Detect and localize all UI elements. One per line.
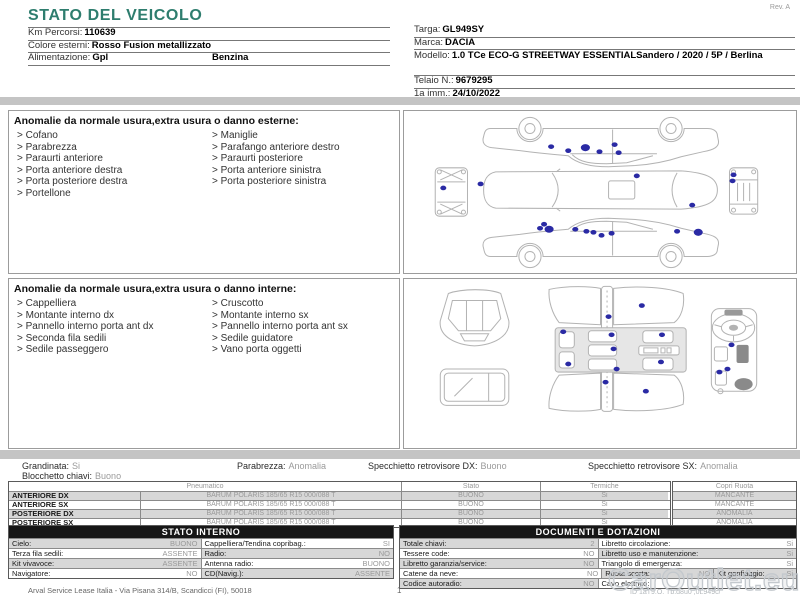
- table-row: Tessere code:NO Libretto uso e manutenzi…: [400, 548, 796, 558]
- field-telaio: Telaio N.:9679295: [414, 76, 795, 89]
- damage-marker: [616, 150, 622, 155]
- damage-marker: [674, 229, 680, 234]
- damage-marker: [572, 227, 578, 232]
- field-marca: Marca:DACIA: [414, 38, 795, 51]
- col-termiche: Termiche: [540, 482, 668, 491]
- exterior-anomalies-heading: Anomalie da normale usura,extra usura o …: [14, 115, 399, 127]
- footer-company: Arval Service Lease Italia - Via Pisana …: [28, 586, 252, 595]
- interior-damage-diagram: [404, 279, 796, 448]
- summary-grandinata: Grandinata:Si: [22, 461, 80, 471]
- damage-marker: [658, 360, 664, 365]
- table-row: Cielo:BUONO Cappelliera/Tendina copribag…: [9, 538, 393, 548]
- car-side-view-bottom: [483, 218, 719, 267]
- interior-diagram-box: [403, 278, 797, 449]
- anomaly-item: Pannello interno porta ant dx: [17, 321, 204, 333]
- section-divider-bar: [0, 450, 800, 459]
- anomaly-item: Sedile passeggero: [17, 344, 204, 356]
- section-divider-bar: [0, 97, 800, 105]
- vehicle-info-left: Km Percorsi:110639 Colore esterni:Rosso …: [28, 27, 390, 66]
- damage-marker: [548, 144, 554, 149]
- anomaly-item: Sedile guidatore: [212, 333, 399, 345]
- damage-marker: [612, 142, 618, 147]
- anomaly-item: Pannello interno porta ant sx: [212, 321, 399, 333]
- damage-marker: [596, 149, 602, 154]
- col-pneumatico: Pneumatico: [9, 482, 401, 491]
- damage-marker: [730, 173, 736, 178]
- anomaly-item: Cofano: [17, 130, 204, 142]
- exterior-anomaly-list-left: Cofano Parabrezza Paraurti anteriore Por…: [17, 130, 204, 199]
- interior-anomaly-list-right: Cruscotto Montante interno sx Pannello i…: [212, 298, 399, 356]
- damage-marker: [609, 231, 615, 236]
- damage-marker: [614, 367, 620, 372]
- damage-marker: [590, 230, 596, 235]
- hatch-view: [440, 369, 509, 405]
- damage-marker: [545, 226, 554, 233]
- copri-value: ANOMALIA: [673, 509, 796, 518]
- summary-parabrezza: Parabrezza:Anomalia: [237, 461, 326, 471]
- copri-ruota-table: Copri Ruota MANCANTE MANCANTE ANOMALIA A…: [672, 481, 797, 528]
- car-top-view: [484, 169, 718, 211]
- copri-value: MANCANTE: [673, 500, 796, 509]
- vehicle-info-right: Targa:GL949SY Marca:DACIA Modello:1.0 TC…: [414, 25, 795, 101]
- anomaly-item: Parafango anteriore destro: [212, 142, 399, 154]
- table-row: Kit vivavoce:ASSENTE Antenna radio:BUONO: [9, 558, 393, 568]
- damage-marker: [611, 347, 617, 352]
- car-side-view-top: [483, 117, 719, 166]
- tire-row-anteriore-dx: ANTERIORE DX BARUM POLARIS 185/65 R15 00…: [9, 491, 670, 500]
- dashboard-view: [711, 309, 756, 394]
- exterior-anomaly-list-right: Maniglie Parafango anteriore destro Para…: [212, 130, 399, 199]
- damage-marker: [565, 362, 571, 367]
- anomaly-item: Vano porta oggetti: [212, 344, 399, 356]
- damage-marker: [694, 229, 703, 236]
- page-title: STATO DEL VEICOLO: [28, 7, 202, 25]
- damage-marker: [603, 380, 609, 385]
- trunk-view: [440, 290, 509, 346]
- interior-anomalies-box: Anomalie da normale usura,extra usura o …: [8, 278, 400, 449]
- damage-marker: [583, 229, 589, 234]
- table-row: Terza fila sedili:ASSENTE Radio:NO: [9, 548, 393, 558]
- table-row: Totale chiavi:2 Libretto circolazione:Si: [400, 538, 796, 548]
- anomaly-item: Paraurti posteriore: [212, 153, 399, 165]
- exterior-anomalies-box: Anomalie da normale usura,extra usura o …: [8, 110, 400, 274]
- anomaly-item: Cappelliera: [17, 298, 204, 310]
- damage-marker: [609, 332, 615, 337]
- damage-marker: [724, 367, 730, 372]
- damage-marker: [659, 332, 665, 337]
- anomaly-item: Porta posteriore sinistra: [212, 176, 399, 188]
- field-modello: Modello:1.0 TCe ECO-G STREETWAY ESSENTIA…: [414, 50, 795, 76]
- anomaly-item: Seconda fila sedili: [17, 333, 204, 345]
- documenti-title: DOCUMENTI E DOTAZIONI: [400, 526, 796, 538]
- summary-specchietto-sx: Specchietto retrovisore SX:Anomalia: [588, 461, 738, 471]
- tire-table: Pneumatico Stato Termiche ANTERIORE DX B…: [8, 481, 671, 528]
- table-row: Navigatore:NO CD(Navig.):ASSENTE: [9, 568, 393, 578]
- damage-marker: [560, 329, 566, 334]
- damage-marker: [728, 343, 734, 348]
- damage-marker: [606, 314, 612, 319]
- field-alimentazione: Alimentazione:Gpl Benzina: [28, 53, 390, 66]
- condition-summary: Grandinata:Si Parabrezza:Anomalia Specch…: [0, 459, 800, 481]
- damage-marker: [440, 186, 446, 191]
- tire-row-anteriore-sx: ANTERIORE SX BARUM POLARIS 185/65 R15 00…: [9, 500, 670, 509]
- damage-marker: [716, 370, 722, 375]
- cabin-view: [549, 286, 686, 411]
- exterior-diagram-box: [403, 110, 797, 274]
- interior-anomaly-list-left: Cappelliera Montante interno dx Pannello…: [17, 298, 204, 356]
- caroutlet-watermark: CarOutlet.eu: [608, 562, 800, 598]
- damage-marker: [598, 233, 604, 238]
- anomaly-item: Paraurti anteriore: [17, 153, 204, 165]
- tire-row-posteriore-dx: POSTERIORE DX BARUM POLARIS 185/65 R15 0…: [9, 509, 670, 518]
- damage-marker: [581, 144, 590, 151]
- summary-specchietto-dx: Specchietto retrovisore DX:Buono: [368, 461, 507, 471]
- col-stato: Stato: [401, 482, 540, 491]
- anomaly-item: Portellone: [17, 188, 204, 200]
- damage-marker: [565, 148, 571, 153]
- damage-marker: [689, 203, 695, 208]
- anomaly-item: Montante interno dx: [17, 310, 204, 322]
- anomaly-item: Porta posteriore destra: [17, 176, 204, 188]
- copri-value: MANCANTE: [673, 491, 796, 500]
- interior-anomalies-heading: Anomalie da normale usura,extra usura o …: [14, 283, 399, 295]
- anomaly-item: Montante interno sx: [212, 310, 399, 322]
- revision-label: Rev. A: [770, 4, 790, 11]
- anomaly-item: Porta anteriore destra: [17, 165, 204, 177]
- col-copri-ruota: Copri Ruota: [673, 482, 796, 491]
- damage-marker: [537, 226, 543, 231]
- damage-marker: [478, 182, 484, 187]
- field-targa: Targa:GL949SY: [414, 25, 795, 38]
- damage-marker: [639, 303, 645, 308]
- damage-marker: [541, 222, 547, 227]
- damage-marker: [643, 389, 649, 394]
- tire-table-header: Pneumatico Stato Termiche: [9, 482, 670, 491]
- car-front-view: [435, 168, 467, 216]
- damage-marker: [729, 179, 735, 184]
- stato-interno-title: STATO INTERNO: [9, 526, 393, 538]
- exterior-damage-diagram: [404, 111, 796, 273]
- summary-blocchetto-chiavi: Blocchetto chiavi:Buono: [22, 471, 121, 481]
- stato-interno-table: STATO INTERNO Cielo:BUONO Cappelliera/Te…: [8, 525, 394, 579]
- vehicle-status-report: STATO DEL VEICOLO Rev. A Km Percorsi:110…: [0, 0, 800, 600]
- anomaly-item: Maniglie: [212, 130, 399, 142]
- anomaly-item: Porta anteriore sinistra: [212, 165, 399, 177]
- anomaly-item: Parabrezza: [17, 142, 204, 154]
- footer-page-number: 1: [397, 586, 401, 595]
- anomaly-item: Cruscotto: [212, 298, 399, 310]
- damage-marker: [634, 174, 640, 179]
- fuel-secondary-value: Benzina: [212, 53, 248, 64]
